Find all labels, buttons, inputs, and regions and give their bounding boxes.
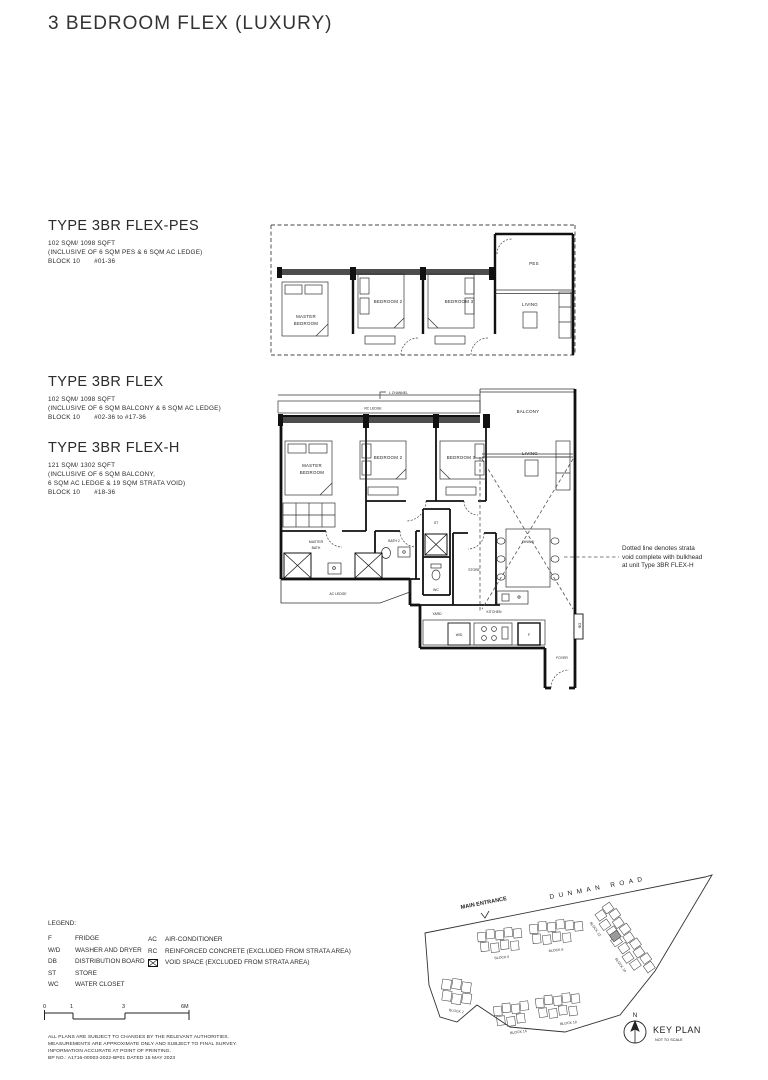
block-label: BLOCK 6	[494, 955, 509, 961]
room-label-kitchen: KITCHEN	[487, 610, 502, 614]
page-title: 3 BEDROOM FLEX (LUXURY)	[48, 13, 332, 35]
window-band	[281, 417, 480, 423]
legend-row: ST STORE	[48, 969, 378, 978]
north-label: N	[633, 1012, 638, 1019]
bed-3	[440, 441, 486, 495]
scale-tick-0: 0	[43, 1004, 46, 1010]
room-label-living: LIVING	[522, 451, 538, 456]
legend-abbr: W/D	[48, 946, 75, 955]
type-name: TYPE 3BR FLEX-H	[48, 440, 185, 456]
type-name: TYPE 3BR FLEX-PES	[48, 218, 203, 234]
room-label-bedroom-3: BEDROOM 3	[445, 299, 474, 304]
scale-tick-3: 3	[122, 1004, 125, 1010]
disclaimer-line: BP NO.: A1716-00003-2022-BP01 DATED 15 M…	[48, 1055, 308, 1062]
label-fridge: F	[528, 633, 530, 637]
room-label-wc: WC	[433, 588, 439, 592]
room-label-bath-2: BATH 2	[388, 539, 400, 543]
block-label: BLOCK 16	[510, 1029, 527, 1035]
block-6-cluster: BLOCK 6	[477, 926, 524, 961]
room-label-st: ST	[434, 521, 438, 525]
block-label: BLOCK 18	[560, 1020, 577, 1026]
room-label-bedroom-2: BEDROOM 2	[374, 455, 403, 460]
room-label-master-bath: MASTER	[309, 540, 324, 544]
bed-master	[285, 441, 332, 495]
coffee-table	[525, 460, 538, 476]
block-2-cluster: BLOCK 2	[438, 977, 473, 1015]
room-label-balcony: BALCONY	[517, 409, 540, 414]
coffee-table	[523, 312, 537, 328]
legend-right-column: AC AIR-CONDITIONER RC REINFORCED CONCRET…	[148, 935, 378, 970]
legend-abbr: RC	[148, 947, 165, 956]
annotation-line: at unit Type 3BR FLEX-H	[622, 562, 752, 571]
legend-desc: WATER CLOSET	[75, 980, 378, 989]
bed-2	[358, 274, 404, 344]
dining-set	[497, 529, 559, 587]
room-label-foyer: FOYER	[556, 656, 568, 660]
disclaimer-line: INFORMATION ACCURATE AT POINT OF PRINTIN…	[48, 1048, 308, 1055]
room-label-bedroom-2: BEDROOM 2	[374, 299, 403, 304]
type-stack: #18-36	[94, 488, 115, 497]
room-label-store: STORE	[468, 568, 480, 572]
strata-void-annotation: Dotted line denotes strata void complete…	[622, 545, 752, 571]
legend-abbr: ST	[48, 969, 75, 978]
legend-row: AC AIR-CONDITIONER	[148, 935, 378, 944]
scale-tick-1: 1	[70, 1004, 73, 1010]
legend-desc: AIR-CONDITIONER	[165, 935, 378, 944]
pes-walls	[495, 234, 573, 355]
l-channel-line	[278, 392, 480, 399]
block-label: BLOCK 10	[614, 957, 627, 973]
legend-abbr: DB	[48, 957, 75, 966]
block-18-cluster: BLOCK 18	[535, 992, 583, 1029]
room-label-pes: PES	[529, 261, 539, 266]
type-inclusive: 6 SQM AC LEDGE & 19 SQM STRATA VOID)	[48, 479, 185, 488]
room-label-yard: YARD	[432, 612, 442, 616]
road-label: DUNMAN ROAD	[549, 875, 647, 901]
legend-abbr: F	[48, 934, 75, 943]
type-section-flex-h: TYPE 3BR FLEX-H 121 SQM/ 1302 SQFT (INCL…	[48, 440, 185, 497]
block-10-12-cluster: BLOCK 10 BLOCK 12	[586, 901, 657, 984]
annotation-line: void complete with bulkhead	[622, 554, 752, 563]
room-label-dining: DINING	[522, 540, 534, 544]
block-label: BLOCK 2	[449, 1008, 464, 1014]
key-plan-title: KEY PLAN	[653, 1025, 701, 1035]
legend-desc: REINFORCED CONCRETE (EXCLUDED FROM STRAT…	[165, 947, 378, 956]
door-arc	[401, 338, 418, 355]
scale-tick-6m: 6M	[181, 1004, 189, 1010]
room-label-master-bedroom: BEDROOM	[294, 321, 319, 326]
wardrobe	[283, 503, 335, 527]
type-block: BLOCK 10	[48, 257, 80, 266]
type-inclusive: (INCLUSIVE OF 6 SQM PES & 6 SQM AC LEDGE…	[48, 248, 203, 257]
type-section-flex-pes: TYPE 3BR FLEX-PES 102 SQM/ 1098 SQFT (IN…	[48, 218, 203, 266]
compass-needle	[631, 1021, 639, 1043]
room-label-master-bedroom: MASTER	[302, 463, 322, 468]
north-indicator: N	[624, 1012, 646, 1043]
legend: LEGEND: F FRIDGE W/D WASHER AND DRYER DB…	[48, 919, 378, 992]
disclaimer-line: ALL PLANS ARE SUBJECT TO CHANGES BY THE …	[48, 1034, 308, 1041]
label-db: DB	[578, 623, 582, 628]
disclaimer: ALL PLANS ARE SUBJECT TO CHANGES BY THE …	[48, 1034, 308, 1062]
strata-void-lines	[480, 457, 619, 611]
type-block: BLOCK 10	[48, 413, 80, 422]
type-stack: #02-36 to #17-36	[94, 413, 146, 422]
bed-master	[282, 282, 328, 336]
scale-bar-line	[45, 1010, 190, 1020]
block-8-cluster: BLOCK 8	[529, 917, 585, 954]
type-name: TYPE 3BR FLEX	[48, 374, 221, 390]
scale-bar: 0 1 3 6M	[43, 1002, 203, 1024]
key-plan: MAIN ENTRANCE DUNMAN ROAD BLOCK 6 BLOCK …	[415, 865, 768, 1070]
legend-desc: VOID SPACE (EXCLUDED FROM STRATA AREA)	[165, 958, 378, 967]
type-inclusive: (INCLUSIVE OF 6 SQM BALCONY & 6 SQM AC L…	[48, 404, 221, 413]
sofa	[559, 292, 571, 338]
legend-row: VOID SPACE (EXCLUDED FROM STRATA AREA)	[148, 958, 378, 967]
room-label-master-bath: BATH	[312, 546, 321, 550]
label-ac-ledge: AC LEDGE	[329, 592, 347, 596]
type-section-flex: TYPE 3BR FLEX 102 SQM/ 1098 SQFT (INCLUS…	[48, 374, 221, 422]
key-plan-subtitle: NOT TO SCALE	[655, 1038, 683, 1042]
ac-ledge-outline	[281, 579, 410, 603]
legend-abbr: AC	[148, 935, 165, 944]
sofa	[556, 441, 570, 490]
main-entrance-label: MAIN ENTRANCE	[460, 896, 507, 911]
type-stack: #01-36	[94, 257, 115, 266]
label-wd: W/D	[456, 633, 463, 637]
void-space-icon	[148, 958, 165, 967]
legend-heading: LEGEND:	[48, 919, 378, 928]
label-l-channel: L CHANNEL	[389, 391, 408, 395]
legend-desc: STORE	[75, 969, 378, 978]
label-rc-ledge: RC LEDGE	[364, 407, 382, 411]
legend-abbr: WC	[48, 980, 75, 989]
block-16-cluster: BLOCK 16	[493, 1001, 532, 1037]
room-label-master-bedroom: MASTER	[296, 314, 316, 319]
door-arc	[497, 239, 512, 254]
floorplan-flex-main: L CHANNEL RC LEDGE BALCONY	[268, 383, 620, 715]
disclaimer-line: MEASUREMENTS ARE APPROXIMATE ONLY AND SU…	[48, 1041, 308, 1048]
type-area: 121 SQM/ 1302 SQFT	[48, 461, 185, 470]
legend-row: RC REINFORCED CONCRETE (EXCLUDED FROM ST…	[148, 947, 378, 956]
type-inclusive: (INCLUSIVE OF 6 SQM BALCONY,	[48, 470, 185, 479]
room-label-bedroom-3: BEDROOM 3	[447, 455, 476, 460]
room-label-master-bedroom: BEDROOM	[300, 470, 325, 475]
block-label: BLOCK 8	[548, 948, 563, 954]
bed-3	[428, 274, 474, 344]
floorplan-page: 3 BEDROOM FLEX (LUXURY) TYPE 3BR FLEX-PE…	[0, 0, 768, 1080]
annotation-line: Dotted line denotes strata	[622, 545, 752, 554]
door-arc	[471, 338, 488, 355]
entrance-arrow	[481, 911, 489, 918]
floorplan-flex-pes: MASTER BEDROOM BEDROOM 2 BEDROOM 3 LIVIN…	[268, 222, 578, 362]
legend-row: WC WATER CLOSET	[48, 980, 378, 989]
type-area: 102 SQM/ 1098 SQFT	[48, 395, 221, 404]
room-label-living: LIVING	[522, 302, 538, 307]
type-area: 102 SQM/ 1098 SQFT	[48, 239, 203, 248]
type-block: BLOCK 10	[48, 488, 80, 497]
